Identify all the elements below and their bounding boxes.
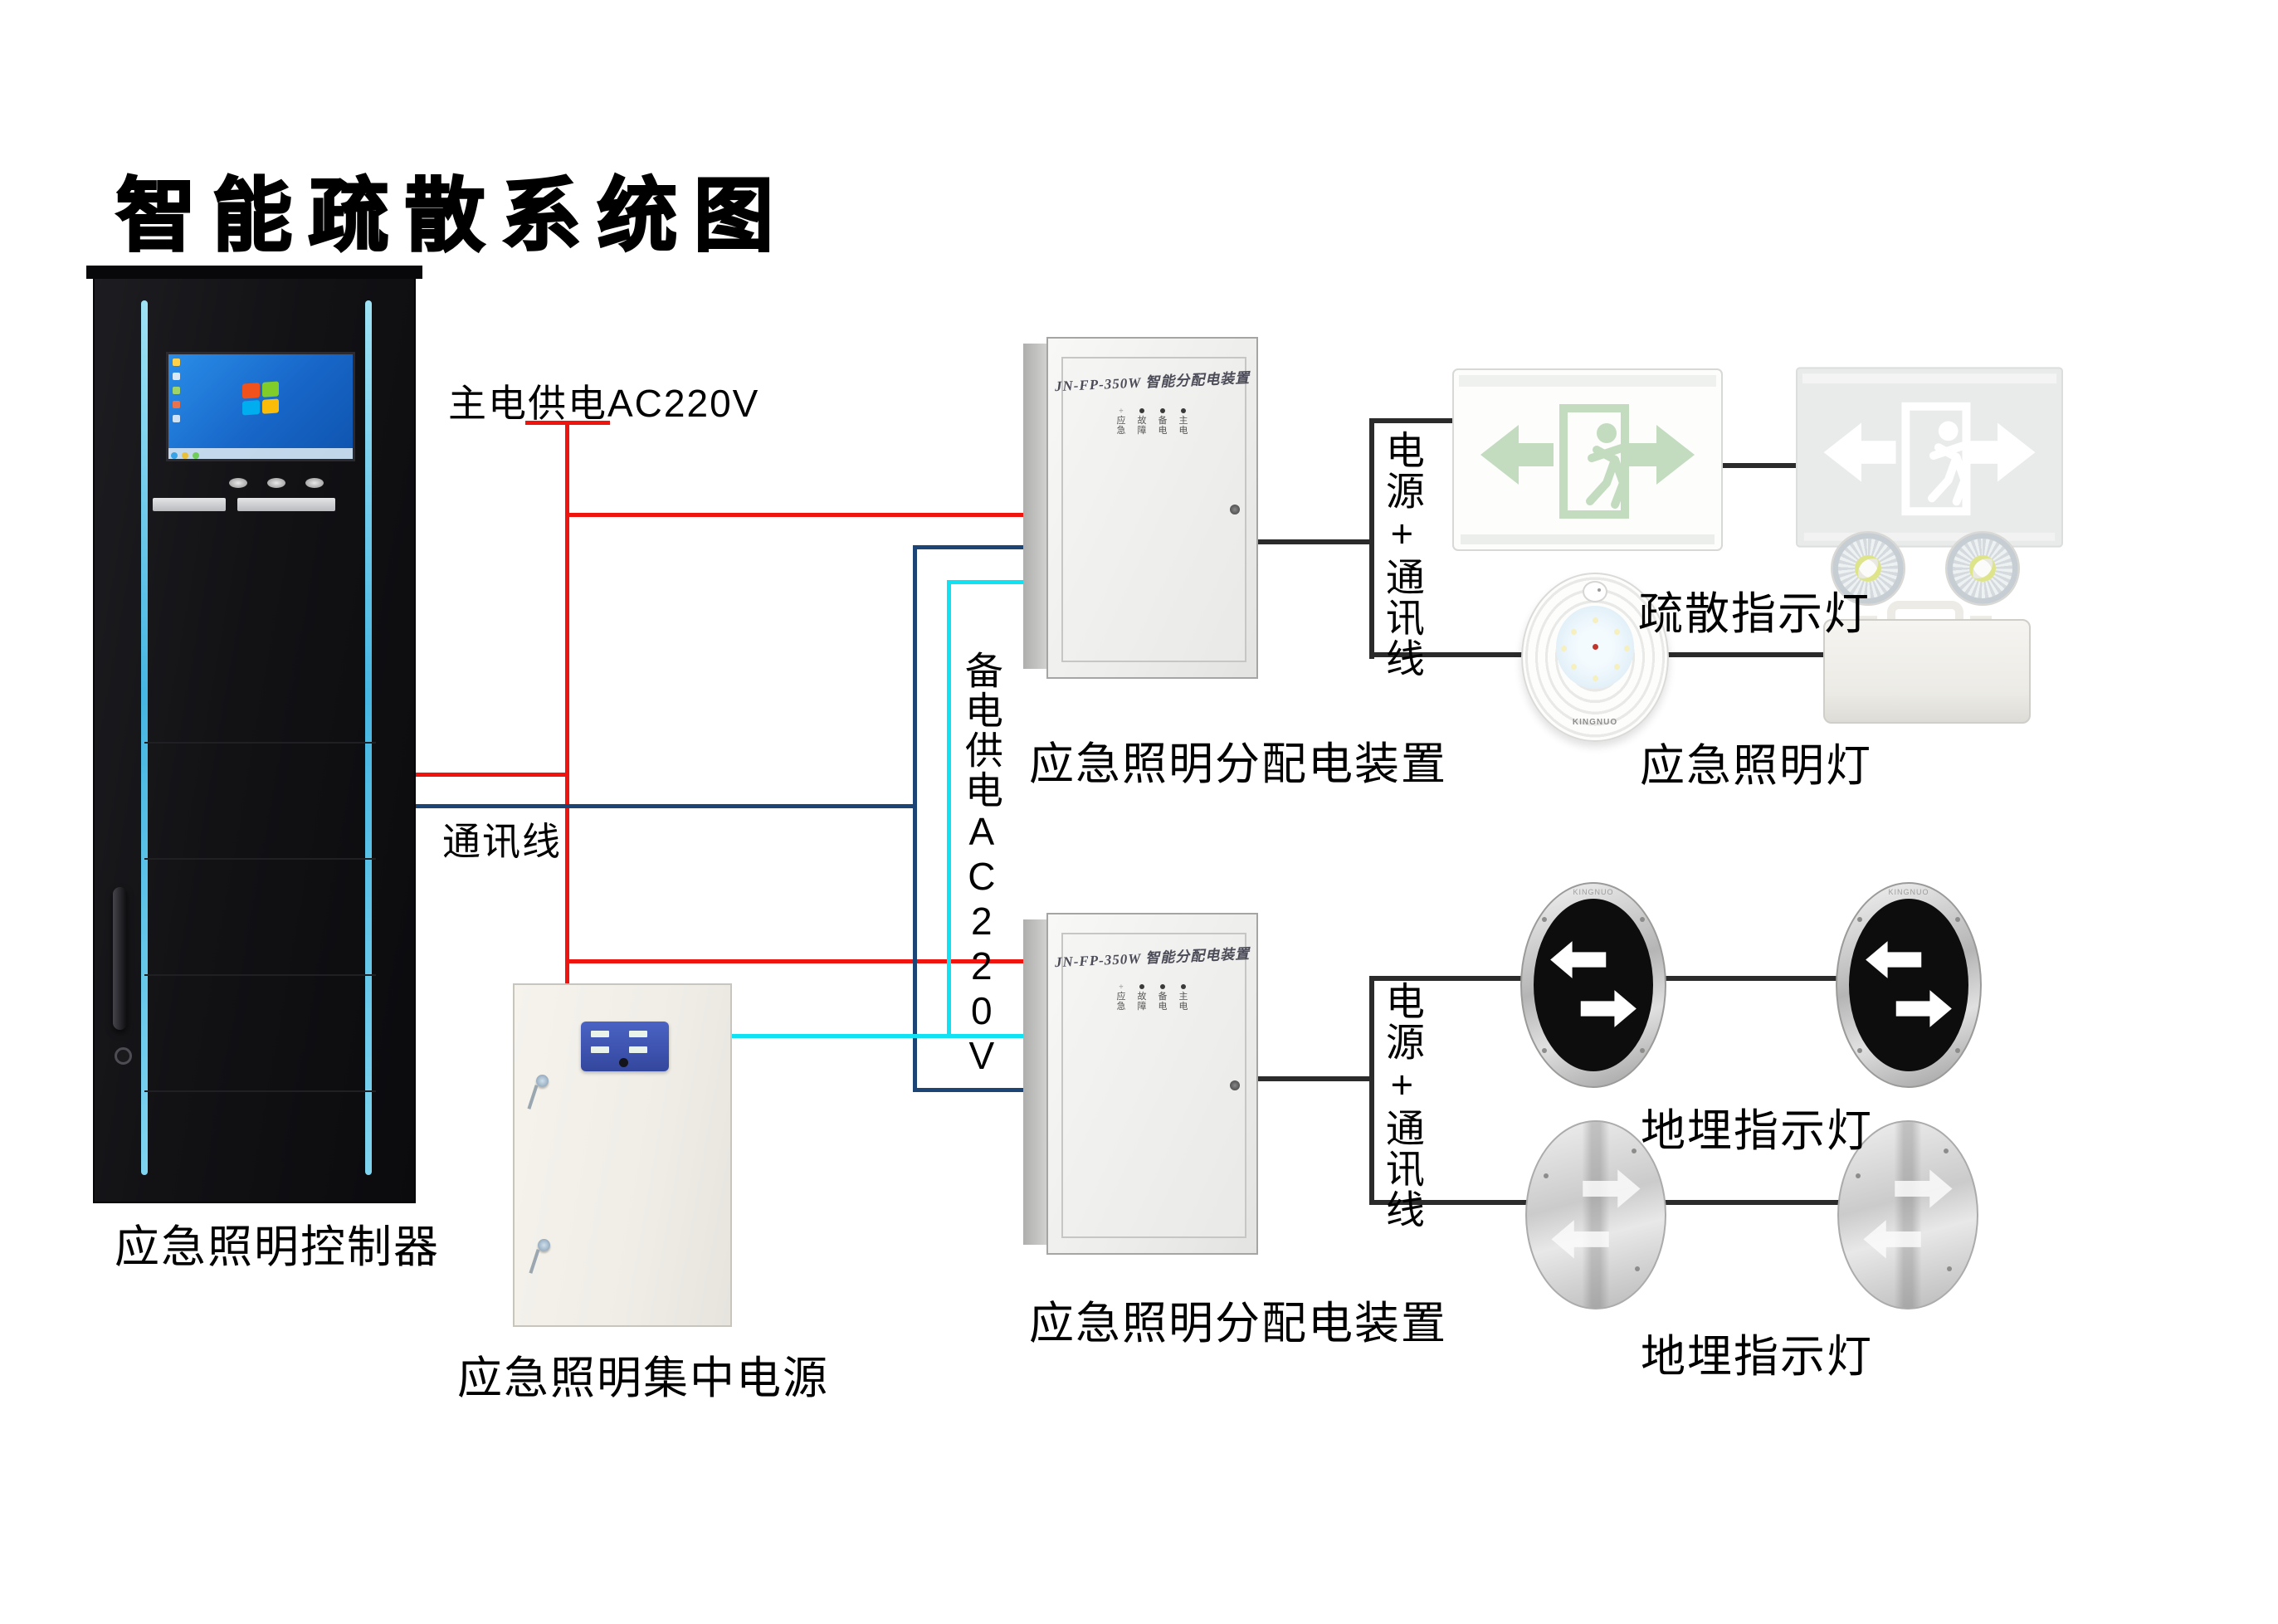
link-sign1-sign2 [1723, 463, 1796, 468]
link-box2-bracket [1258, 1076, 1371, 1081]
distribution-box-indicators: ÷应急 故障 备电 主电 [1048, 984, 1256, 1012]
distribution-box-door [1061, 933, 1246, 1238]
lamp-brand: KINGNUO [1523, 718, 1667, 727]
rack-vent [153, 498, 226, 511]
left-arrow-icon [1866, 941, 1921, 978]
rack-top-cap [86, 266, 422, 279]
rack-keyhole [115, 1047, 132, 1065]
left-arrow-icon [1551, 1220, 1608, 1258]
desktop-icons [173, 358, 181, 441]
rack-door-handle [113, 887, 127, 1030]
psu-keyhole-lower [538, 1239, 550, 1251]
main-power-branch-controller [411, 773, 569, 777]
rack-vent [237, 498, 335, 511]
comm-line-vertical [913, 545, 917, 1092]
power-comm-label-2: 电源+通讯线 [1381, 981, 1422, 1230]
left-arrow-icon [1550, 941, 1606, 978]
ground-light-label-1: 地埋指示灯 [1641, 1094, 1873, 1159]
rack-led-strip-right [365, 300, 372, 1175]
exit-sign-unlit [1796, 366, 2063, 549]
comm-line-from-controller [411, 804, 917, 808]
exit-sign-label: 疏散指示灯 [1638, 577, 1871, 642]
bracket1-vertical [1369, 418, 1374, 659]
main-power-label: 主电供电AC220V [448, 373, 759, 428]
controller-screen [166, 352, 355, 461]
windows-logo [242, 381, 279, 415]
bracket2-vertical [1369, 976, 1374, 1205]
right-arrow-icon [1896, 990, 1952, 1027]
comm-branch-box2 [913, 1088, 1027, 1092]
right-arrow-icon [1583, 1169, 1640, 1207]
comm-branch-box1 [913, 545, 1027, 549]
distribution-box-lock [1230, 505, 1240, 515]
bracket1-top-arm [1369, 418, 1457, 423]
ground-light-lit-2: KINGNUO [1836, 882, 1982, 1088]
distribution-box-1: JN-FP-350W 智能分配电装置 ÷应急 故障 备电 主电 [1023, 337, 1258, 679]
psu-control-panel [581, 1022, 669, 1071]
main-power-branch-box1 [565, 513, 1027, 517]
controller-label: 应急照明控制器 [115, 1210, 440, 1275]
distribution-box-2-label: 应急照明分配电装置 [1029, 1286, 1447, 1352]
right-arrow-icon [1581, 990, 1637, 1027]
ground-light-label-2: 地埋指示灯 [1641, 1319, 1873, 1385]
central-power-supply [513, 983, 732, 1327]
emergency-lighting-controller [93, 276, 416, 1203]
backup-power-branch-box1 [947, 580, 1027, 584]
central-power-label: 应急照明集中电源 [457, 1341, 829, 1407]
link-box1-bracket [1258, 539, 1371, 544]
backup-power-vertical [947, 580, 951, 1038]
lamp-sensor [1583, 581, 1607, 602]
comm-line-label: 通讯线 [442, 812, 562, 866]
left-arrow-icon [1863, 1220, 1920, 1258]
power-comm-label-1: 电源+通讯线 [1381, 430, 1422, 679]
distribution-box-2: JN-FP-350W 智能分配电装置 ÷应急 故障 备电 主电 [1023, 913, 1258, 1255]
distribution-box-indicators: ÷应急 故障 备电 主电 [1048, 408, 1256, 436]
distribution-box-door [1061, 357, 1246, 662]
exit-sign-lit [1452, 368, 1723, 551]
evacuation-system-diagram: 智能疏散系统图 主电供电AC220V 通讯线 备电供电AC220V 电源+通讯线… [0, 0, 2278, 1624]
distribution-box-1-label: 应急照明分配电装置 [1029, 727, 1447, 792]
psu-knob [619, 1058, 628, 1067]
ground-light-lit-1: KINGNUO [1520, 882, 1666, 1088]
main-power-bus-vertical [565, 421, 569, 985]
taskbar [168, 448, 353, 459]
emergency-lamp-label: 应急照明灯 [1640, 729, 1872, 794]
backup-power-label: 备电供电AC220V [961, 651, 1001, 1079]
rack-knob [229, 478, 247, 488]
lamp-led-area [1556, 606, 1634, 689]
main-power-branch-box2 [565, 959, 1027, 963]
psu-keyhole-upper [536, 1075, 549, 1087]
right-arrow-icon [1895, 1169, 1952, 1207]
rack-knob [305, 478, 324, 488]
rack-led-strip-left [141, 300, 148, 1175]
rack-knob [267, 478, 285, 488]
distribution-box-lock [1230, 1080, 1240, 1090]
diagram-title: 智能疏散系统图 [116, 151, 790, 266]
lamp-head-right [1945, 531, 2020, 606]
